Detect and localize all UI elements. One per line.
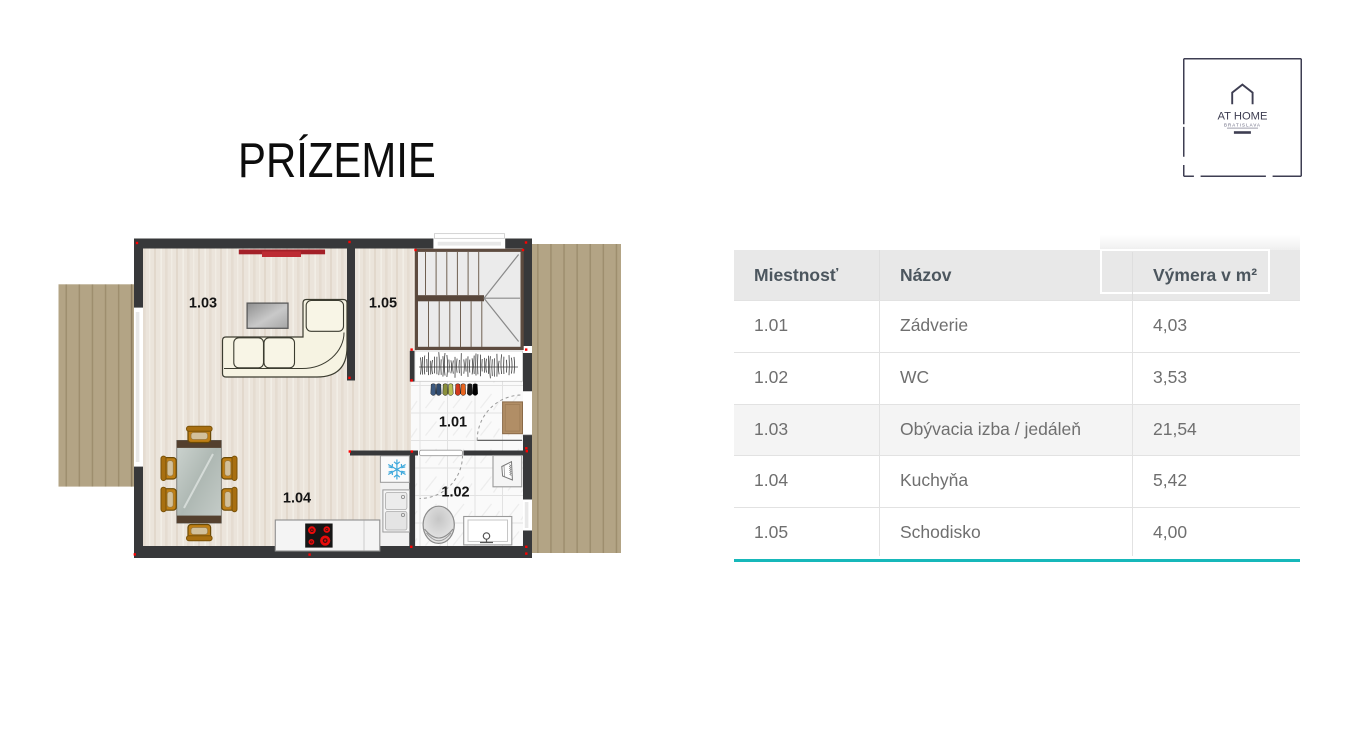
- svg-text:1.02: 1.02: [441, 485, 469, 501]
- svg-text:AT HOME: AT HOME: [1218, 111, 1268, 123]
- svg-text:1.01: 1.01: [439, 415, 467, 431]
- svg-text:BRATISLAVA: BRATISLAVA: [1224, 122, 1261, 127]
- svg-text:1.05: 1.05: [369, 296, 397, 312]
- svg-text:1.03: 1.03: [189, 296, 217, 312]
- svg-text:1.04: 1.04: [283, 491, 311, 507]
